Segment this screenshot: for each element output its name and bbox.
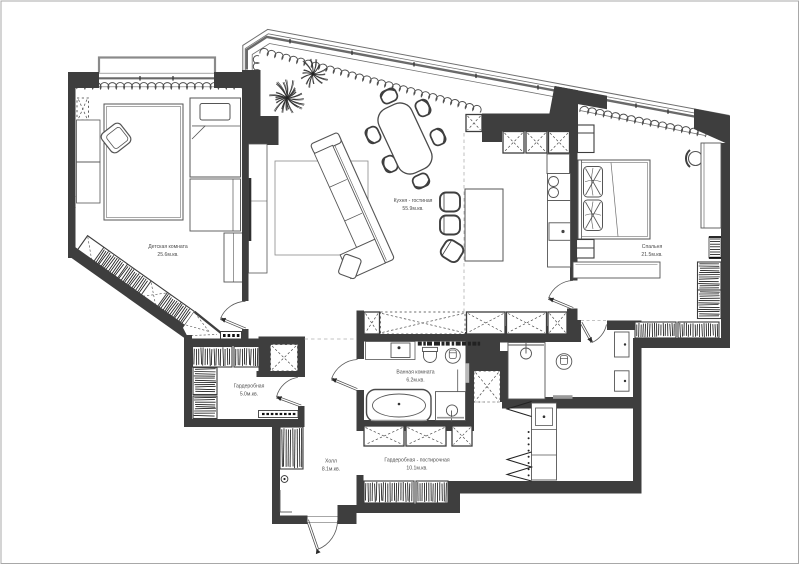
svg-text:5.0м.кв.: 5.0м.кв.	[240, 392, 258, 398]
svg-text:25.6м.кв.: 25.6м.кв.	[157, 252, 178, 258]
svg-text:Гардеробная - постирочная: Гардеробная - постирочная	[384, 458, 450, 464]
svg-text:Детская комната: Детская комната	[148, 244, 188, 250]
svg-text:10.1м.кв.: 10.1м.кв.	[406, 466, 427, 472]
svg-text:Ванная комната: Ванная комната	[396, 370, 434, 376]
svg-text:Холл: Холл	[325, 459, 337, 465]
svg-text:21.5м.кв.: 21.5м.кв.	[641, 252, 662, 258]
svg-text:Кухня - гостиная: Кухня - гостиная	[394, 198, 433, 204]
svg-text:Спальня: Спальня	[642, 244, 663, 250]
svg-text:Гардеробная: Гардеробная	[234, 384, 265, 390]
svg-text:8.1м.кв.: 8.1м.кв.	[322, 467, 340, 473]
svg-text:55.9м.кв.: 55.9м.кв.	[402, 206, 423, 212]
svg-text:6.2м.кв.: 6.2м.кв.	[406, 378, 424, 384]
